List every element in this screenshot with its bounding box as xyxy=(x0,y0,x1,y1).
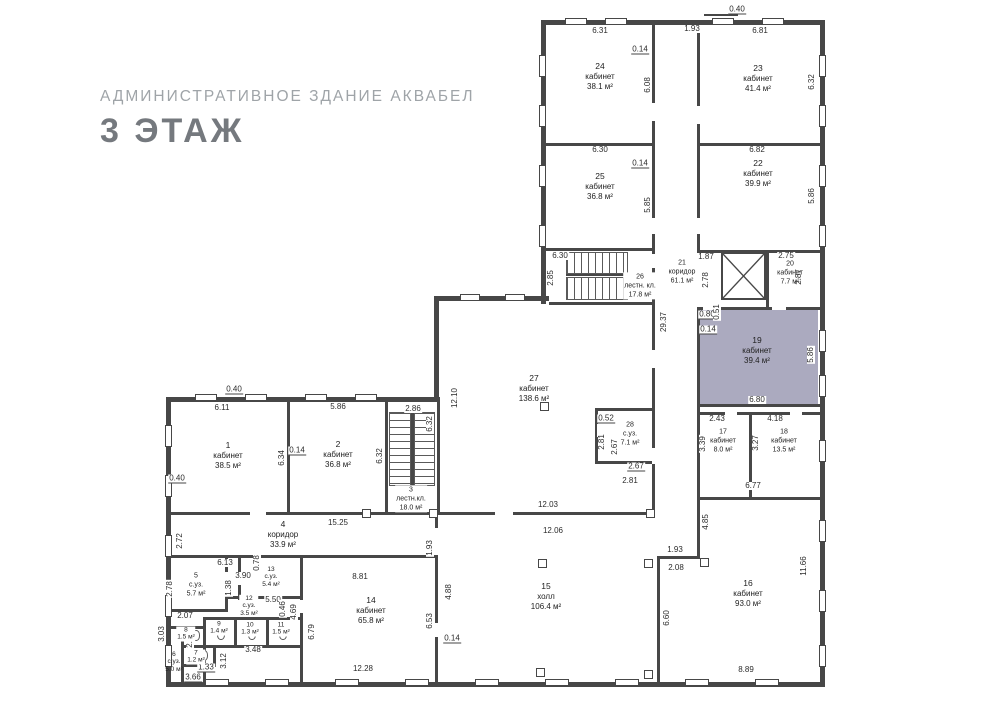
dimension-label: 3.27 xyxy=(752,434,760,452)
room-label-2: 2кабинет36.8 м² xyxy=(323,439,352,471)
room-label-5: 5с.уз.5.7 м² xyxy=(187,571,206,598)
dimension-label: 2.86 xyxy=(404,405,422,413)
door-opening xyxy=(652,218,655,234)
door-opening xyxy=(435,623,438,637)
dimension-label: 6.30 xyxy=(551,252,569,260)
dimension-label: 6.60 xyxy=(663,609,671,627)
dimension-label: 4.69 xyxy=(290,603,298,621)
door-opening xyxy=(697,218,700,234)
dimension-label: 1.93 xyxy=(666,546,684,554)
room-label-26: 26лестн. кл.17.8 м² xyxy=(623,272,657,299)
room-label-22: 22кабинет39.9 м² xyxy=(743,158,772,190)
door-opening xyxy=(790,412,802,415)
wall xyxy=(385,399,388,515)
stairs-3-landing xyxy=(411,412,414,486)
dimension-label: 2.81 xyxy=(598,433,606,451)
dimension-label: 4.88 xyxy=(445,583,453,601)
door-opening xyxy=(652,254,655,268)
room-label-20: 20кабинет7.7 м² xyxy=(777,259,803,286)
dimension-label: 6.81 xyxy=(751,27,769,35)
room-label-28: 28с.уз.7.1 м² xyxy=(621,420,640,447)
wall xyxy=(657,556,660,684)
window-mark xyxy=(819,225,826,247)
room-label-14: 14кабинет65.8 м² xyxy=(356,595,385,627)
dimension-label: 2.78 xyxy=(702,271,710,289)
column-mark xyxy=(362,509,371,518)
dimension-label: 6.53 xyxy=(426,612,434,630)
door-opening xyxy=(697,106,700,124)
dimension-label: 11.66 xyxy=(800,555,808,576)
dimension-label: 5.86 xyxy=(329,403,347,411)
dimension-label: 2.43 xyxy=(708,415,726,423)
window-mark xyxy=(505,294,525,301)
dimension-label: 6.79 xyxy=(308,623,316,641)
dimension-label: 2.78 xyxy=(166,580,174,598)
wall xyxy=(595,408,655,411)
dimension-label: 0.40 xyxy=(728,6,746,15)
window-mark xyxy=(819,55,826,77)
window-mark xyxy=(819,440,826,462)
window-mark xyxy=(762,18,784,25)
dimension-label: 8.89 xyxy=(737,666,755,674)
room-label-7: 71.2 м² xyxy=(186,650,205,665)
window-mark xyxy=(605,18,627,25)
dimension-label: 0.52 xyxy=(597,415,615,424)
room-label-1: 1кабинет38.5 м² xyxy=(213,440,242,472)
window-mark xyxy=(539,105,546,127)
dimension-label: 2.67 xyxy=(611,438,619,456)
window-mark xyxy=(545,679,569,686)
dimension-label: 0.14 xyxy=(288,447,306,456)
wall xyxy=(697,497,700,559)
room-label-10: 101.3 м² xyxy=(240,622,259,637)
dimension-label: 8.81 xyxy=(351,573,369,581)
door-opening xyxy=(652,103,655,121)
dimension-label: 29.37 xyxy=(660,311,668,333)
window-mark xyxy=(565,18,587,25)
room-label-13: 13с.уз.5.4 м² xyxy=(261,566,280,588)
dimension-label: 1.33 xyxy=(197,664,215,673)
room-label-3: 3лестн.кл.18.0 м² xyxy=(395,485,427,512)
room-label-15: 15холл106.4 м² xyxy=(531,581,561,613)
dimension-label: 6.30 xyxy=(591,146,609,154)
wall xyxy=(766,250,769,307)
dimension-label: 6.77 xyxy=(744,482,762,490)
window-mark xyxy=(819,105,826,127)
dimension-label: 3.90 xyxy=(234,572,252,580)
window-mark xyxy=(819,165,826,187)
window-mark xyxy=(165,425,172,447)
dimension-label: 12.28 xyxy=(352,665,374,673)
wall xyxy=(595,461,655,464)
window-mark xyxy=(539,165,546,187)
door-opening xyxy=(250,512,266,515)
door-opening xyxy=(652,448,655,464)
dimension-label: 6.08 xyxy=(644,76,652,94)
wall xyxy=(697,497,823,500)
column-mark xyxy=(700,558,709,567)
dimension-label: 5.86 xyxy=(808,187,816,205)
wall xyxy=(287,399,290,515)
dimension-label: 1.87 xyxy=(697,253,715,261)
window-mark xyxy=(305,394,327,401)
dimension-label: 15.25 xyxy=(327,519,349,527)
stairs-26-flight xyxy=(566,277,628,300)
dimension-label: 0.14 xyxy=(699,326,717,335)
dimension-label: 6.32 xyxy=(808,73,816,91)
column-mark xyxy=(429,509,438,518)
window-mark xyxy=(819,645,826,667)
dimension-label: 1.38 xyxy=(225,579,233,597)
window-mark xyxy=(755,679,779,686)
dimension-label: 6.34 xyxy=(278,449,286,467)
window-mark xyxy=(819,375,826,397)
elevator-shaft-icon xyxy=(721,252,766,300)
dimension-label: 4.18 xyxy=(766,415,784,423)
dimension-label: 3.66 xyxy=(184,674,202,683)
dimension-label: 3.12 xyxy=(220,652,228,670)
window-mark xyxy=(405,679,429,686)
stairs-3-flight xyxy=(389,412,411,486)
dimension-label: 2.08 xyxy=(667,564,685,572)
wall xyxy=(657,556,697,559)
dimension-label: 6.11 xyxy=(214,404,231,412)
door-opening xyxy=(772,307,786,310)
dimension-label: 6.82 xyxy=(748,146,766,154)
room-label-18: 18кабинет13.5 м² xyxy=(771,427,797,454)
door-opening xyxy=(495,512,513,515)
dimension-label: 6.13 xyxy=(216,559,234,567)
window-mark xyxy=(819,590,826,612)
window-mark xyxy=(265,679,289,686)
wall xyxy=(697,404,823,407)
window-mark xyxy=(355,394,377,401)
door-opening xyxy=(300,600,303,613)
wall xyxy=(266,617,269,648)
stairs-26-flight xyxy=(566,252,628,274)
wall xyxy=(549,302,655,305)
dimension-label: 2.85 xyxy=(547,269,555,287)
dimension-label: 4.85 xyxy=(702,513,710,531)
dimension-label: 6.31 xyxy=(591,27,609,35)
dimension-label: 0.78 xyxy=(253,554,261,572)
door-opening xyxy=(725,412,737,415)
page-title: 3 ЭТАЖ xyxy=(100,112,244,151)
dimension-label: 1.93 xyxy=(426,539,434,557)
dimension-label: 3.48 xyxy=(244,646,262,654)
window-mark xyxy=(819,330,826,352)
window-mark xyxy=(475,679,499,686)
column-mark xyxy=(536,668,545,677)
column-mark xyxy=(646,509,655,518)
wall xyxy=(437,399,440,515)
room-label-4: 4коридор33.9 м² xyxy=(268,519,299,551)
building-subtitle: АДМИНИСТРАТИВНОЕ ЗДАНИЕ АКВАБЕЛ xyxy=(100,88,475,106)
column-mark xyxy=(538,559,547,568)
room-label-23: 23кабинет41.4 м² xyxy=(743,63,772,95)
window-mark xyxy=(195,394,217,401)
wall xyxy=(435,555,438,685)
dimension-label: 1.93 xyxy=(683,25,701,33)
dimension-label: 3.03 xyxy=(158,625,166,643)
window-mark xyxy=(245,394,267,401)
dimension-label: 12.06 xyxy=(542,527,564,535)
room-label-8: 81.5 м² xyxy=(176,627,195,642)
wall xyxy=(300,558,303,685)
room-label-25: 25кабинет36.8 м² xyxy=(585,171,614,203)
window-mark xyxy=(165,595,172,617)
wall xyxy=(434,296,439,402)
dimension-label: 2.72 xyxy=(176,532,184,550)
room-label-11: 111.5 м² xyxy=(271,622,290,637)
room-label-17: 17кабинет8.0 м² xyxy=(710,427,736,454)
dimension-label: 2.81 xyxy=(621,477,639,485)
room-label-27: 27кабинет138.6 м² xyxy=(519,373,549,405)
dimension-label: 0.40 xyxy=(225,386,243,395)
room-label-19: 19кабинет39.4 м² xyxy=(742,335,771,367)
door-opening xyxy=(652,350,655,368)
column-mark xyxy=(644,559,653,568)
room-label-6: 6с.уз.5.0 м² xyxy=(165,651,182,673)
dimension-label: 2.67 xyxy=(627,463,645,472)
column-mark xyxy=(644,670,653,679)
window-mark xyxy=(615,679,639,686)
wall xyxy=(234,617,237,648)
room-label-21: 21коридор61.1 м² xyxy=(669,258,696,285)
stairs-26-landing xyxy=(566,274,628,276)
dimension-label: 2.07 xyxy=(176,612,194,620)
room-label-12: 12с.уз.3.5 м² xyxy=(239,595,258,617)
dimension-label: 6.80 xyxy=(748,396,766,404)
dimension-label: 12.03 xyxy=(537,501,559,509)
dimension-label: 5.85 xyxy=(644,196,652,214)
room-label-16: 16кабинет93.0 м² xyxy=(733,578,762,610)
window-mark xyxy=(205,679,229,686)
dimension-label: 5.86 xyxy=(807,346,815,364)
wall xyxy=(697,307,700,499)
dimension-label: 0.51 xyxy=(713,303,721,321)
dimension-label: 3.39 xyxy=(699,435,707,453)
wall xyxy=(434,296,549,301)
window-mark xyxy=(335,679,359,686)
room-label-9: 91.4 м² xyxy=(209,621,228,636)
window-mark xyxy=(819,520,826,542)
window-mark xyxy=(539,55,546,77)
dimension-label: 0.14 xyxy=(443,635,461,644)
window-mark xyxy=(460,294,480,301)
window-mark xyxy=(539,225,546,247)
window-mark xyxy=(165,535,172,557)
room-label-24: 24кабинет38.1 м² xyxy=(585,61,614,93)
dimension-label: 0.14 xyxy=(631,46,649,55)
window-mark xyxy=(685,679,709,686)
dimension-label: 12.10 xyxy=(451,387,459,409)
dimension-label: 0.40 xyxy=(168,475,186,484)
floor-plan-canvas: АДМИНИСТРАТИВНОЕ ЗДАНИЕ АКВАБЕЛ 3 ЭТАЖ xyxy=(0,0,1000,714)
dimension-label: 6.32 xyxy=(376,447,384,465)
dimension-label: 0.14 xyxy=(631,160,649,169)
dimension-label: 6.32 xyxy=(426,415,434,433)
window-mark xyxy=(712,18,734,25)
dimension-label: 0.46 xyxy=(279,600,287,618)
